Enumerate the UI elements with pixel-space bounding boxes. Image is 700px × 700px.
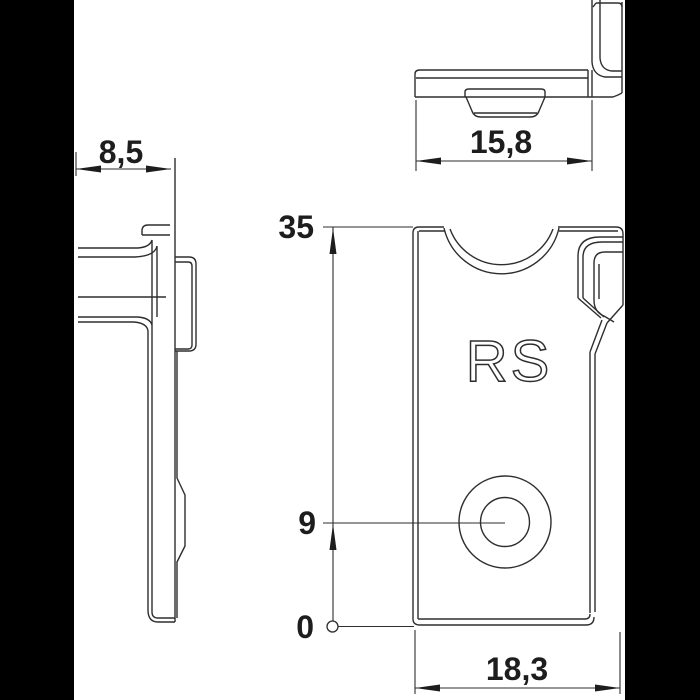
dim-label-top-width: 15,8 — [470, 124, 532, 160]
dim-label-side-depth: 8,5 — [99, 134, 143, 170]
dim-label-baseline: 0 — [296, 609, 314, 645]
technical-drawing: 15,8 8,5 — [0, 0, 700, 700]
part-marking-text: RS — [466, 329, 553, 394]
left-black-bar — [0, 0, 74, 700]
origin-marker-circle — [327, 621, 338, 632]
drawing-canvas: 15,8 8,5 — [0, 0, 700, 700]
right-black-bar — [625, 0, 700, 700]
dim-label-hole-height: 9 — [298, 505, 316, 541]
dim-label-front-width: 18,3 — [486, 651, 548, 687]
dim-label-total-height: 35 — [278, 209, 314, 245]
